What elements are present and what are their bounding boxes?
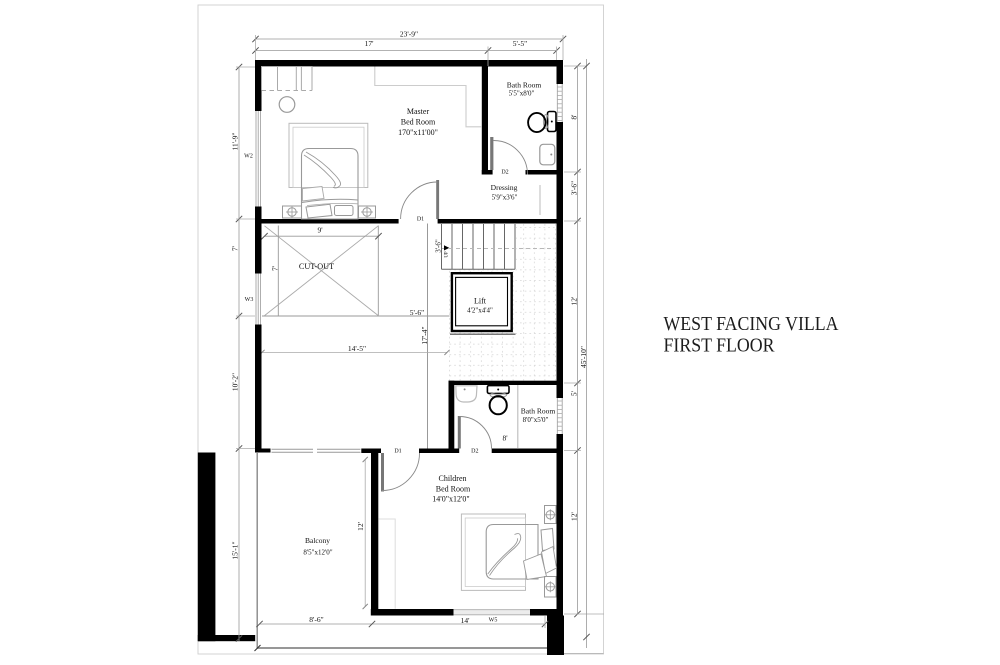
svg-text:5'-6": 5'-6": [410, 308, 424, 317]
svg-text:14'-5": 14'-5": [348, 344, 366, 353]
svg-text:CUT-OUT: CUT-OUT: [299, 262, 334, 271]
svg-text:8'-6": 8'-6": [309, 615, 323, 624]
svg-text:8'5"x12'0": 8'5"x12'0": [303, 549, 332, 557]
svg-text:W2: W2: [244, 154, 253, 160]
svg-text:14'0"x12'0": 14'0"x12'0": [432, 495, 469, 504]
svg-text:17'-4": 17'-4": [420, 326, 429, 344]
svg-text:17': 17': [365, 39, 375, 48]
svg-text:7': 7': [230, 245, 239, 251]
svg-text:12': 12': [356, 521, 365, 531]
svg-text:9': 9': [317, 226, 323, 235]
svg-text:8': 8': [502, 434, 508, 443]
svg-text:8'0"x5'0": 8'0"x5'0": [523, 416, 549, 424]
svg-text:4'2"x4'4": 4'2"x4'4": [467, 307, 493, 315]
svg-text:7': 7': [270, 265, 279, 271]
svg-text:45'-10": 45'-10": [579, 346, 588, 368]
svg-text:WEST FACING VILLA: WEST FACING VILLA: [664, 313, 839, 335]
svg-text:D2: D2: [501, 170, 508, 176]
svg-text:Bed Room: Bed Room: [436, 485, 471, 494]
svg-text:D1: D1: [394, 449, 401, 455]
svg-text:12': 12': [570, 511, 579, 521]
svg-text:170"x11'00": 170"x11'00": [398, 128, 438, 137]
svg-text:8': 8': [570, 114, 579, 120]
svg-text:Bath Room: Bath Room: [521, 407, 556, 416]
svg-text:11'-9": 11'-9": [230, 133, 239, 151]
svg-text:D2: D2: [471, 449, 478, 455]
svg-text:10'-2": 10'-2": [230, 373, 239, 391]
svg-text:5'5"x8'0": 5'5"x8'0": [509, 90, 535, 98]
svg-text:3'-6": 3'-6": [435, 239, 443, 253]
svg-text:5': 5': [570, 390, 579, 396]
svg-text:5'9"x3'6": 5'9"x3'6": [492, 194, 518, 202]
svg-text:5'-5": 5'-5": [513, 39, 527, 48]
svg-text:W3: W3: [245, 297, 254, 303]
svg-text:FIRST FLOOR: FIRST FLOOR: [664, 335, 775, 357]
svg-text:Lift: Lift: [474, 297, 487, 306]
svg-text:W5: W5: [489, 618, 498, 624]
svg-text:12': 12': [570, 296, 579, 306]
svg-text:Children: Children: [439, 474, 467, 483]
svg-text:14': 14': [461, 616, 471, 625]
svg-text:15'-1": 15'-1": [230, 541, 239, 559]
svg-text:Dressing: Dressing: [491, 183, 518, 192]
svg-text:D1: D1: [417, 217, 424, 223]
svg-text:Bed Room: Bed Room: [401, 118, 436, 127]
svg-text:23'-9": 23'-9": [400, 30, 418, 39]
svg-text:Bath Room: Bath Room: [507, 81, 542, 90]
svg-text:Master: Master: [407, 107, 430, 116]
svg-text:Balcony: Balcony: [305, 536, 330, 545]
svg-text:UP: UP: [445, 251, 450, 257]
svg-text:3'-6": 3'-6": [570, 181, 579, 195]
